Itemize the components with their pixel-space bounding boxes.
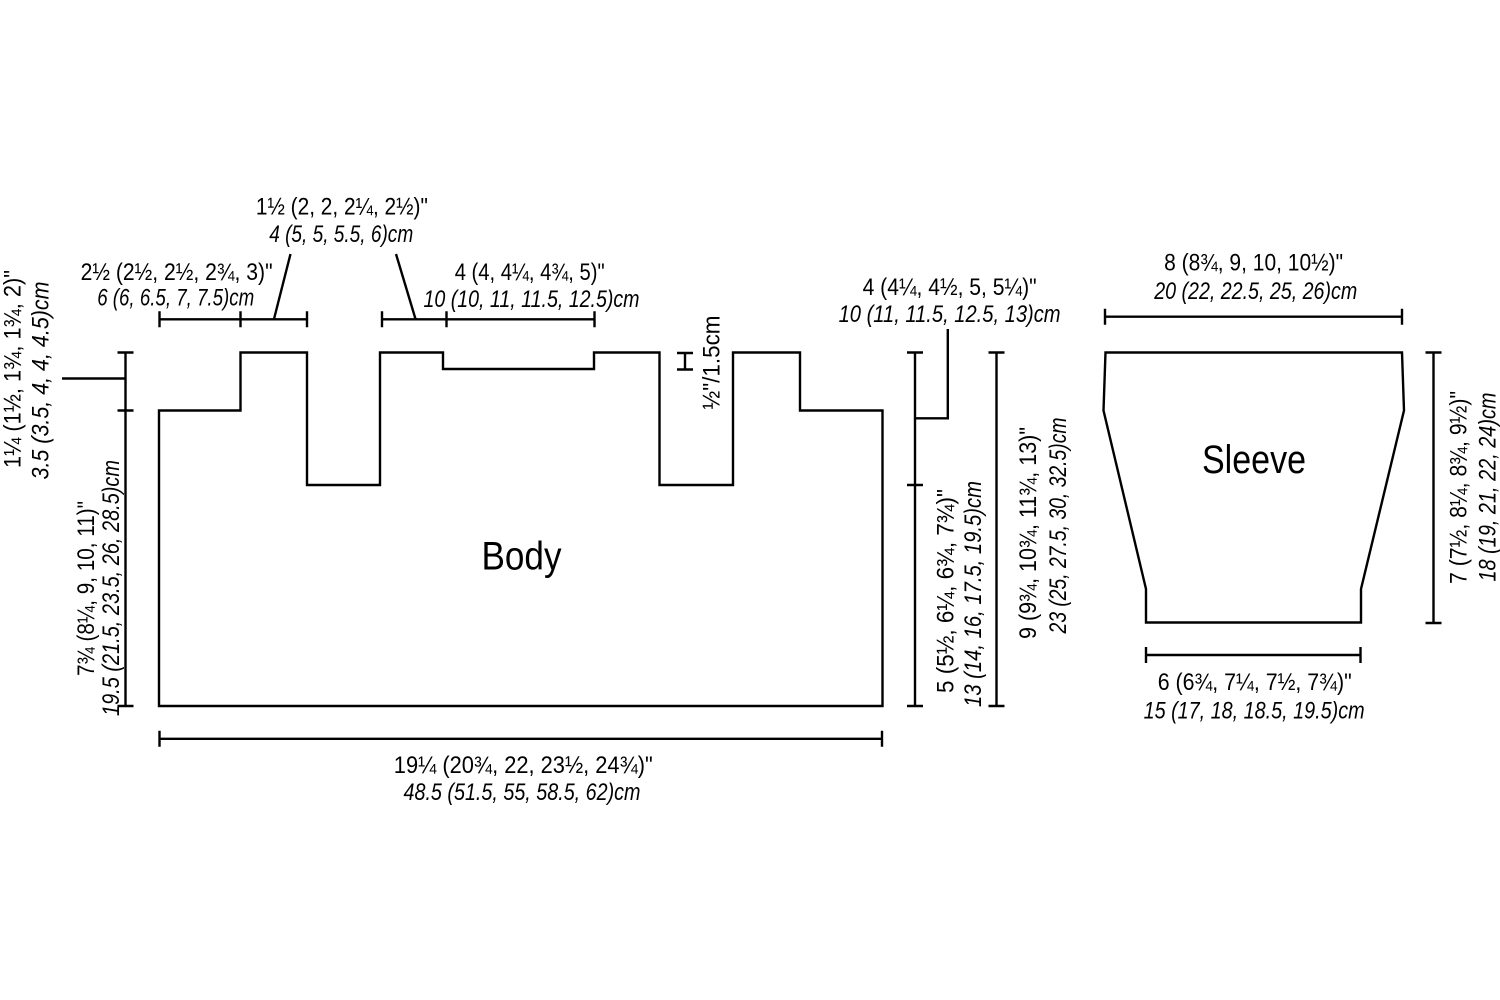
svg-text:Body: Body (482, 535, 562, 579)
svg-text:Sleeve: Sleeve (1202, 438, 1306, 482)
svg-text:8 (8¾, 9, 10, 10½)": 8 (8¾, 9, 10, 10½)" (1164, 250, 1343, 277)
svg-text:6 (6¾, 7¼, 7½, 7¾)": 6 (6¾, 7¼, 7½, 7¾)" (1158, 669, 1352, 696)
svg-text:7¾ (8¼, 9, 10, 11)": 7¾ (8¼, 9, 10, 11)" (73, 501, 100, 676)
svg-text:13 (14, 16, 17.5, 19.5)cm: 13 (14, 16, 17.5, 19.5)cm (960, 481, 987, 707)
svg-text:18 (19, 21, 22, 24)cm: 18 (19, 21, 22, 24)cm (1474, 393, 1500, 582)
svg-text:10 (11, 11.5, 12.5, 13)cm: 10 (11, 11.5, 12.5, 13)cm (839, 301, 1061, 328)
svg-text:15 (17, 18, 18.5, 19.5)cm: 15 (17, 18, 18.5, 19.5)cm (1144, 698, 1365, 725)
svg-text:9 (9¾, 10¾, 11¾, 13)": 9 (9¾, 10¾, 11¾, 13)" (1015, 427, 1042, 639)
svg-text:23 (25, 27.5, 30, 32.5)cm: 23 (25, 27.5, 30, 32.5)cm (1045, 418, 1072, 635)
svg-text:19.5 (21.5, 23.5, 26, 28.5)cm: 19.5 (21.5, 23.5, 26, 28.5)cm (98, 460, 125, 716)
svg-text:4 (5, 5, 5.5, 6)cm: 4 (5, 5, 5.5, 6)cm (269, 221, 413, 248)
svg-text:6 (6, 6.5, 7, 7.5)cm: 6 (6, 6.5, 7, 7.5)cm (97, 285, 254, 312)
svg-text:10 (10, 11, 11.5, 12.5)cm: 10 (10, 11, 11.5, 12.5)cm (424, 286, 640, 313)
svg-text:5 (5½, 6¼, 6¾, 7¾)": 5 (5½, 6¼, 6¾, 7¾)" (932, 489, 959, 693)
svg-text:3.5 (3.5, 4, 4, 4.5)cm: 3.5 (3.5, 4, 4, 4.5)cm (28, 282, 55, 480)
svg-text:4 (4¼, 4½, 5, 5¼)": 4 (4¼, 4½, 5, 5¼)" (863, 274, 1037, 301)
svg-text:1½ (2, 2, 2¼, 2½)": 1½ (2, 2, 2¼, 2½)" (256, 194, 428, 221)
svg-text:48.5 (51.5, 55, 58.5, 62)cm: 48.5 (51.5, 55, 58.5, 62)cm (404, 779, 641, 806)
svg-text:1¼ (1½, 1¾, 1¾, 2)": 1¼ (1½, 1¾, 1¾, 2)" (0, 270, 27, 468)
svg-text:4 (4, 4¼, 4¾, 5)": 4 (4, 4¼, 4¾, 5)" (455, 259, 605, 286)
svg-text:7 (7½, 8¼, 8¾, 9½)": 7 (7½, 8¼, 8¾, 9½)" (1446, 391, 1473, 584)
svg-text:½"/1.5cm: ½"/1.5cm (698, 316, 725, 410)
svg-text:20 (22, 22.5, 25, 26)cm: 20 (22, 22.5, 25, 26)cm (1153, 278, 1357, 305)
svg-text:19¼ (20¾, 22, 23½, 24¾)": 19¼ (20¾, 22, 23½, 24¾)" (394, 752, 653, 779)
svg-text:2½ (2½, 2½, 2¾, 3)": 2½ (2½, 2½, 2¾, 3)" (81, 259, 273, 286)
